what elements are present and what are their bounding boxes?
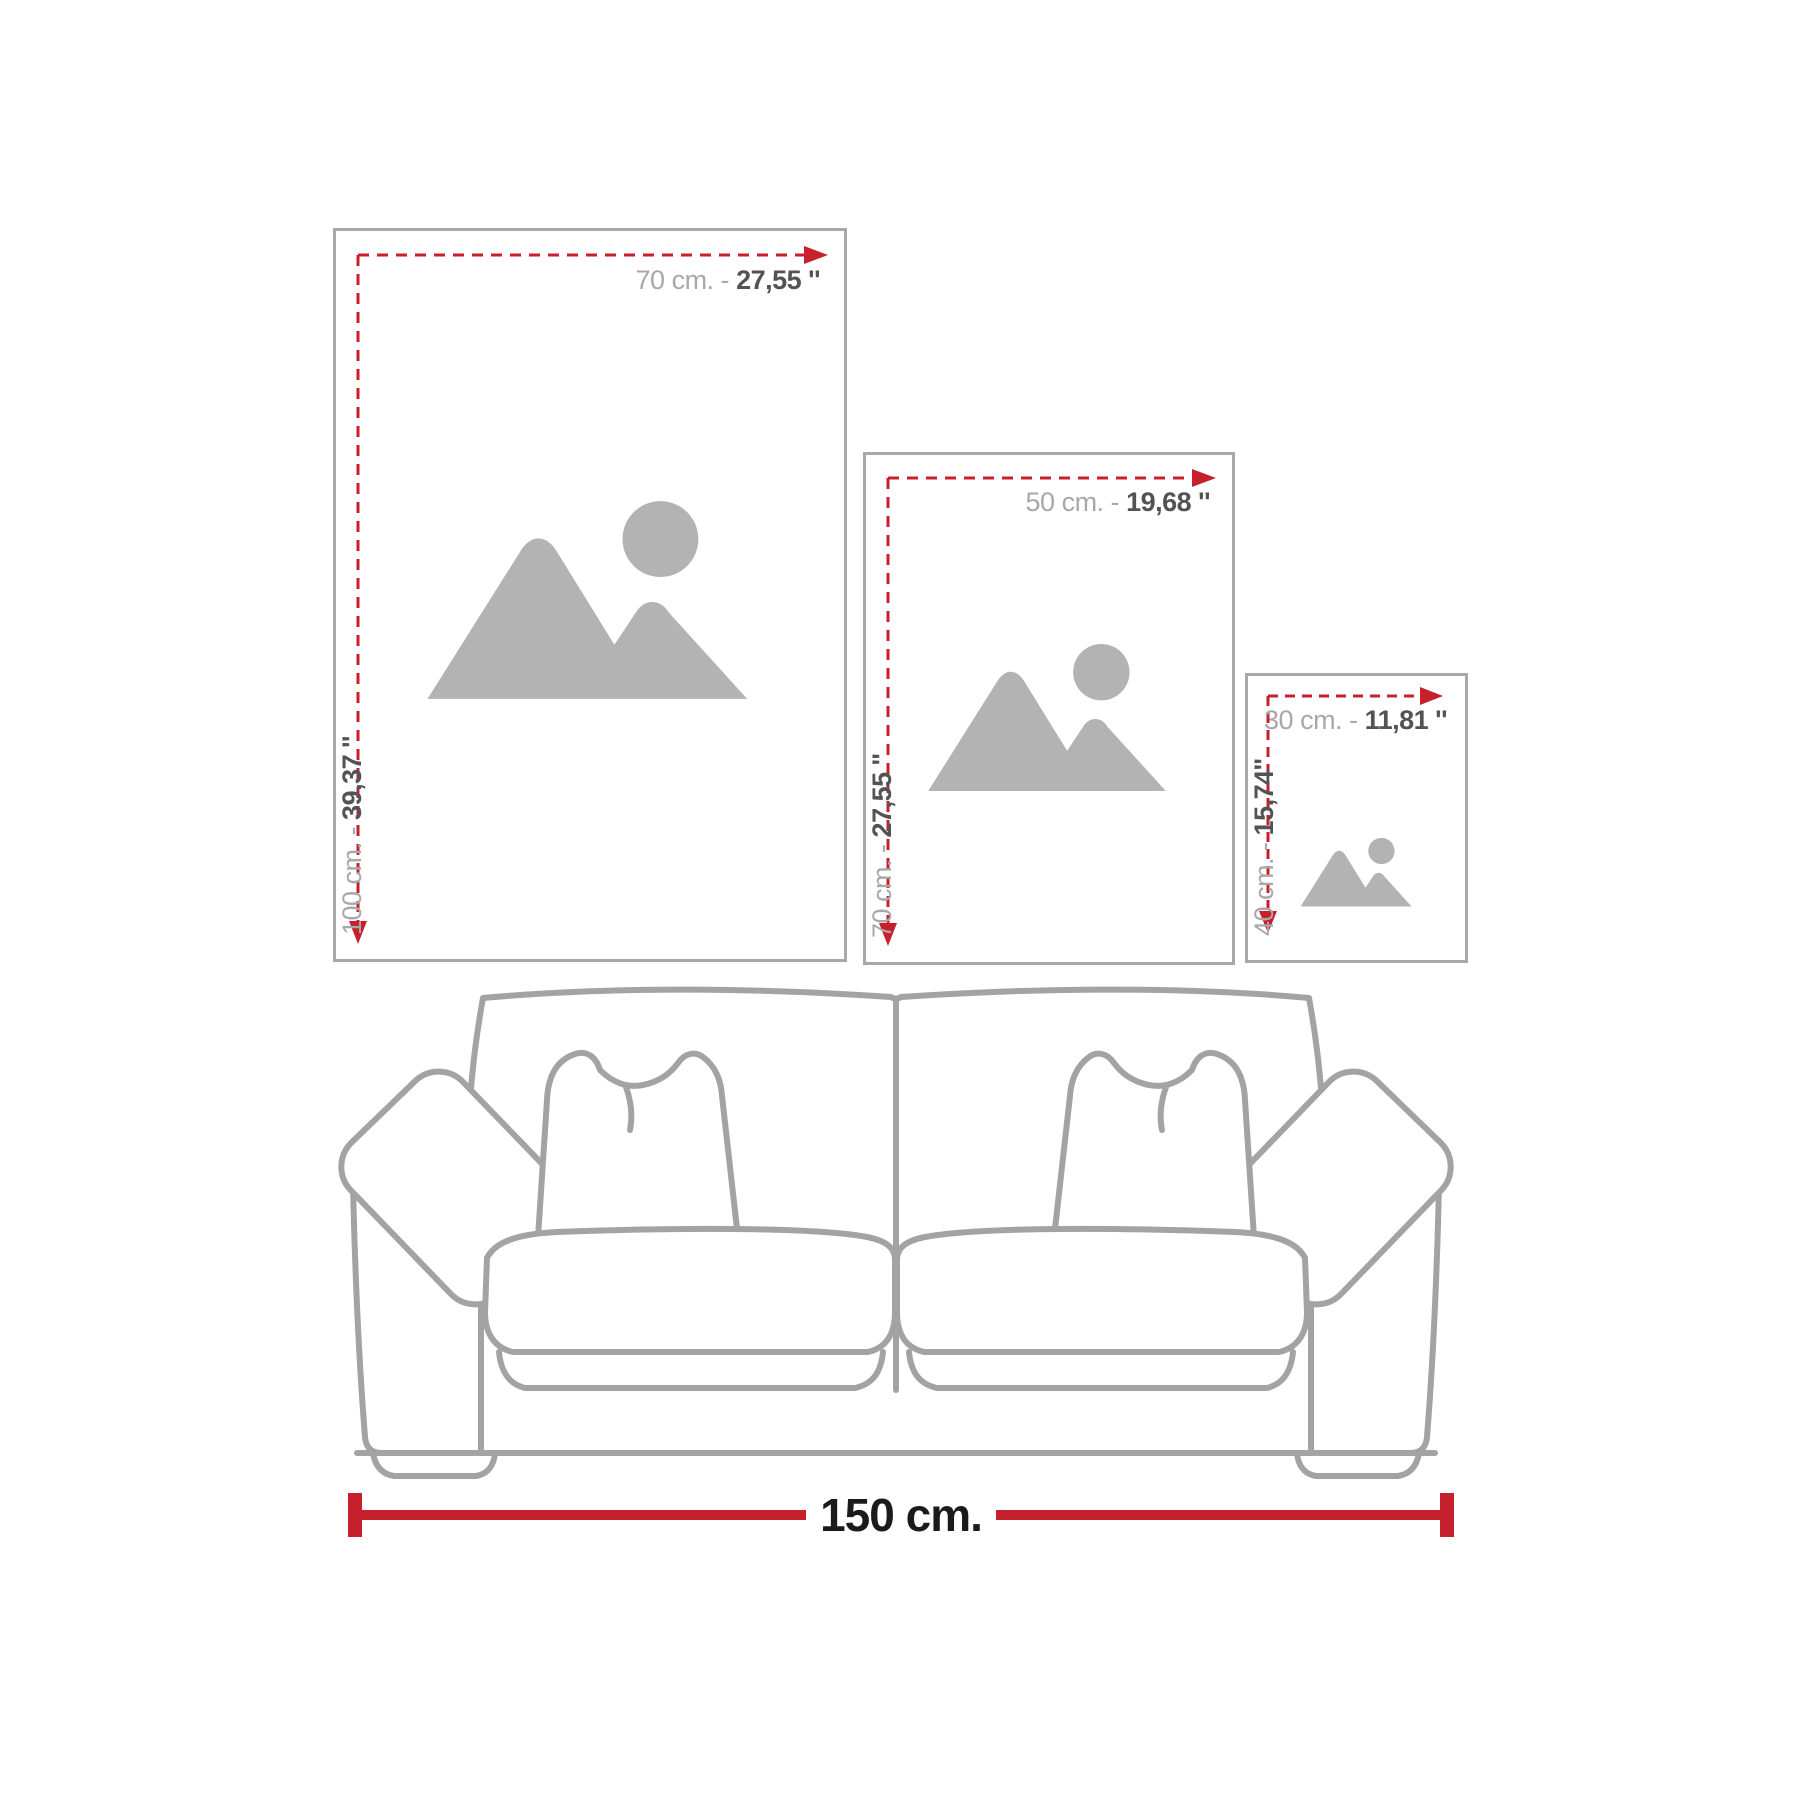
poster-frame-small: 30 cm. - 11,81 '' 40 cm. - 15,74'' <box>1245 673 1468 963</box>
width-dimension-label: 70 cm. - 27,55 '' <box>636 265 820 296</box>
poster-frame-medium: 50 cm. - 19,68 '' 70 cm. - 27,55 '' <box>863 452 1235 965</box>
measure-endcap-left <box>348 1493 362 1537</box>
sofa-illustration <box>295 982 1515 1487</box>
image-placeholder-icon <box>928 638 1170 795</box>
size-guide-canvas: 70 cm. - 27,55 '' 100 cm. - 39,37 '' 50 … <box>0 0 1800 1800</box>
sofa-foot-left <box>373 1453 495 1476</box>
poster-frame-large: 70 cm. - 27,55 '' 100 cm. - 39,37 '' <box>333 228 847 962</box>
sofa-seat-cushion-right <box>897 1229 1307 1352</box>
width-dimension-label: 50 cm. - 19,68 '' <box>1026 487 1210 518</box>
width-dimension-label: 30 cm. - 11,81 '' <box>1264 705 1447 736</box>
measure-endcap-right <box>1440 1493 1454 1537</box>
sofa-width-label: 150 cm. <box>806 1493 996 1537</box>
image-placeholder-icon <box>427 493 752 704</box>
image-placeholder-icon <box>1300 835 1413 908</box>
height-dimension-label: 70 cm. - 27,55 '' <box>867 754 898 938</box>
arrow-right-icon <box>804 246 828 264</box>
sofa-seat-cushion-left <box>485 1229 895 1352</box>
height-dimension-label: 40 cm. - 15,74'' <box>1249 759 1280 936</box>
height-dimension-label: 100 cm. - 39,37 '' <box>337 736 368 935</box>
sofa-foot-right <box>1297 1453 1419 1476</box>
arrow-right-icon <box>1420 687 1443 705</box>
arrow-right-icon <box>1192 469 1216 487</box>
measure-line-right <box>996 1510 1440 1520</box>
measure-line-left <box>362 1510 806 1520</box>
sofa-width-measure: 150 cm. <box>348 1493 1454 1537</box>
